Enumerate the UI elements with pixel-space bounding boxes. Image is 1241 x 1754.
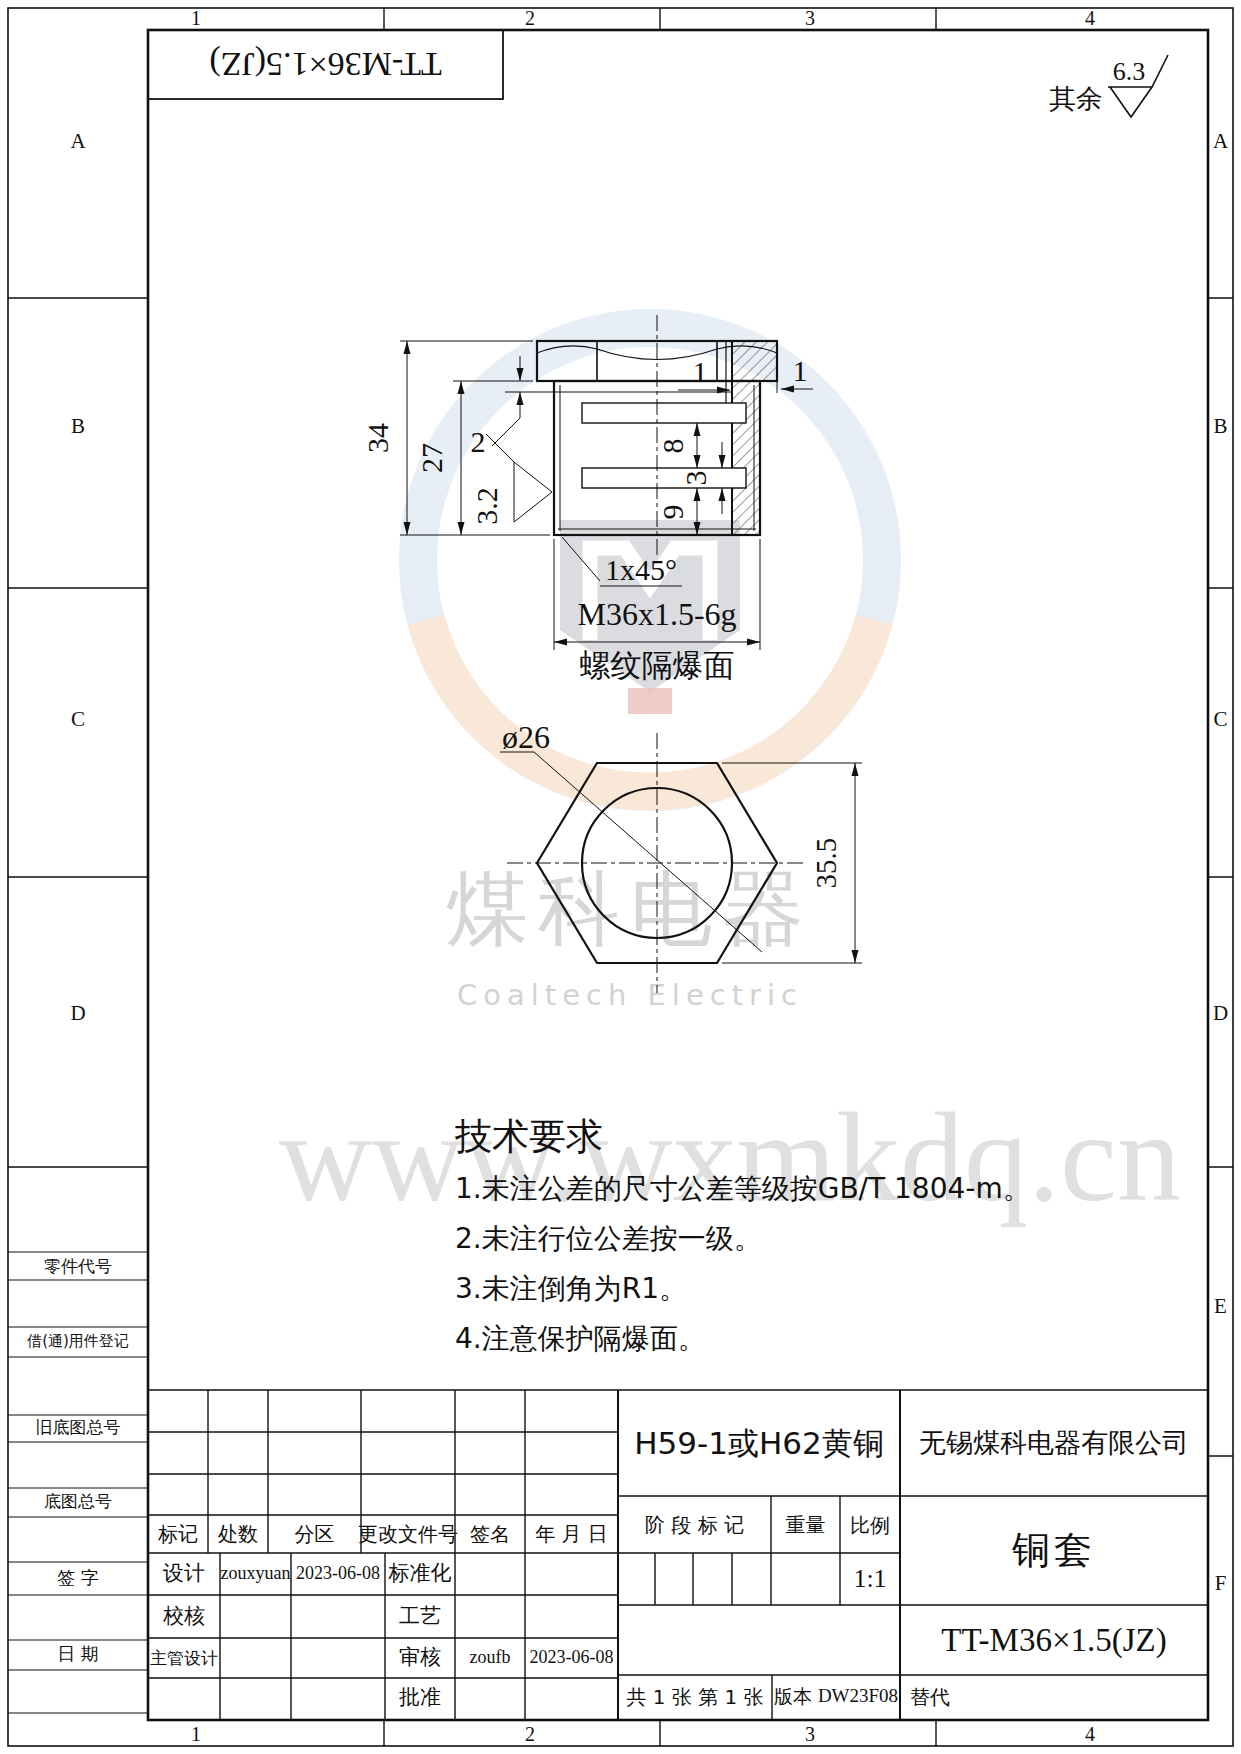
design-date: 2023-06-08 [291, 1553, 385, 1595]
surplus-label: 其余 [1048, 84, 1104, 114]
tech-req-item-2: 2.未注行位公差按一级。 [455, 1222, 1015, 1256]
thread-note: 螺纹隔爆面 [580, 647, 735, 683]
scale-label: 比例 [840, 1496, 900, 1553]
audit-label: 审核 [385, 1638, 455, 1678]
audit-name: zoufb [455, 1638, 525, 1678]
process-label: 工艺 [385, 1595, 455, 1638]
zone-left-b: B [8, 413, 148, 441]
weight-label: 重量 [771, 1496, 840, 1553]
company-name: 无锡煤科电器有限公司 [900, 1390, 1208, 1496]
version-label: 版本 [774, 1686, 812, 1707]
margin-label-part-code: 零件代号 [8, 1252, 148, 1280]
zone-left-d: D [8, 1000, 148, 1028]
dim-8: 8 [656, 439, 689, 454]
material-value: H59-1或H62黄铜 [618, 1390, 900, 1496]
dim-across-flats: 35.5 [810, 838, 842, 889]
zone-right-a: A [1208, 128, 1233, 156]
margin-label-borrow-reg: 借(通)用件登记 [8, 1325, 148, 1357]
dim-34: 34 [361, 423, 394, 453]
drawing-sheet: 煤科电器 Coaltech Electric www.wxmkdq.cn [0, 0, 1241, 1754]
rev-col-count: 处数 [208, 1515, 268, 1553]
dim-3: 3 [679, 471, 712, 486]
rev-col-sign: 签名 [455, 1515, 525, 1553]
zone-bottom-4: 4 [1070, 1722, 1110, 1746]
dim-chamfer: 1x45° [605, 553, 677, 586]
rev-col-mark: 标记 [148, 1515, 208, 1553]
dim-9: 9 [656, 505, 689, 520]
margin-label-signature: 签 字 [8, 1560, 148, 1595]
dim-1-top: 1 [693, 355, 708, 388]
replace-label: 替代 [900, 1675, 1208, 1718]
zone-top-4: 4 [1070, 6, 1110, 30]
zone-top-3: 3 [790, 6, 830, 30]
dim-thread: M36x1.5-6g [577, 596, 736, 632]
dim-2: 2 [471, 425, 486, 458]
check-label: 校核 [148, 1595, 220, 1638]
part-no-box: TT-M36×1.5(JZ) [148, 30, 503, 99]
chief-design-label: 主管设计 [148, 1638, 220, 1678]
stage-mark-label: 阶 段 标 记 [618, 1496, 771, 1553]
zone-right-d: D [1208, 1000, 1233, 1028]
zone-top-1: 1 [176, 6, 216, 30]
part-name: 铜套 [900, 1496, 1208, 1605]
tech-req-item-3: 3.未注倒角为R1。 [455, 1272, 1015, 1306]
margin-label-date: 日 期 [8, 1638, 148, 1670]
zone-top-2: 2 [510, 6, 550, 30]
design-label: 设计 [148, 1553, 220, 1595]
surplus-roughness-value: 6.3 [1113, 57, 1146, 86]
zone-left-a: A [8, 128, 148, 156]
margin-label-base-no: 底图总号 [8, 1486, 148, 1517]
zone-bottom-1: 1 [176, 1722, 216, 1746]
design-name: zouxyuan [220, 1553, 291, 1595]
margin-label-old-base-no: 旧底图总号 [8, 1413, 148, 1442]
zone-right-f: F [1208, 1570, 1233, 1598]
zone-right-c: C [1208, 706, 1233, 734]
rev-col-doc-no: 更改文件号 [361, 1515, 455, 1553]
zone-right-b: B [1208, 413, 1233, 441]
rev-col-zone: 分区 [268, 1515, 361, 1553]
standardize-label: 标准化 [385, 1553, 455, 1595]
approve-label: 批准 [385, 1678, 455, 1718]
zone-right-e: E [1208, 1293, 1233, 1321]
drawing-number: TT-M36×1.5(JZ) [900, 1605, 1208, 1675]
scale-value: 1:1 [840, 1553, 900, 1605]
tech-req-item-4: 4.注意保护隔爆面。 [455, 1322, 1015, 1356]
version-cell: 版本DW23F08 [772, 1675, 900, 1718]
dim-1-side: 1 [793, 354, 808, 387]
tech-req-item-1: 1.未注公差的尺寸公差等级按GB/T 1804-m。 [455, 1172, 1015, 1206]
dim-rough-3-2: 3.2 [470, 487, 503, 525]
zone-left-c: C [8, 706, 148, 734]
zone-bottom-2: 2 [510, 1722, 550, 1746]
rev-col-date: 年 月 日 [525, 1515, 618, 1553]
dim-bore: ø26 [502, 719, 550, 755]
dim-27: 27 [415, 443, 448, 473]
version-value: DW23F08 [818, 1686, 898, 1707]
sheet-info: 共 1 张 第 1 张 [618, 1675, 772, 1718]
tech-req-title: 技术要求 [455, 1112, 615, 1162]
zone-bottom-3: 3 [790, 1722, 830, 1746]
audit-date: 2023-06-08 [525, 1638, 618, 1678]
